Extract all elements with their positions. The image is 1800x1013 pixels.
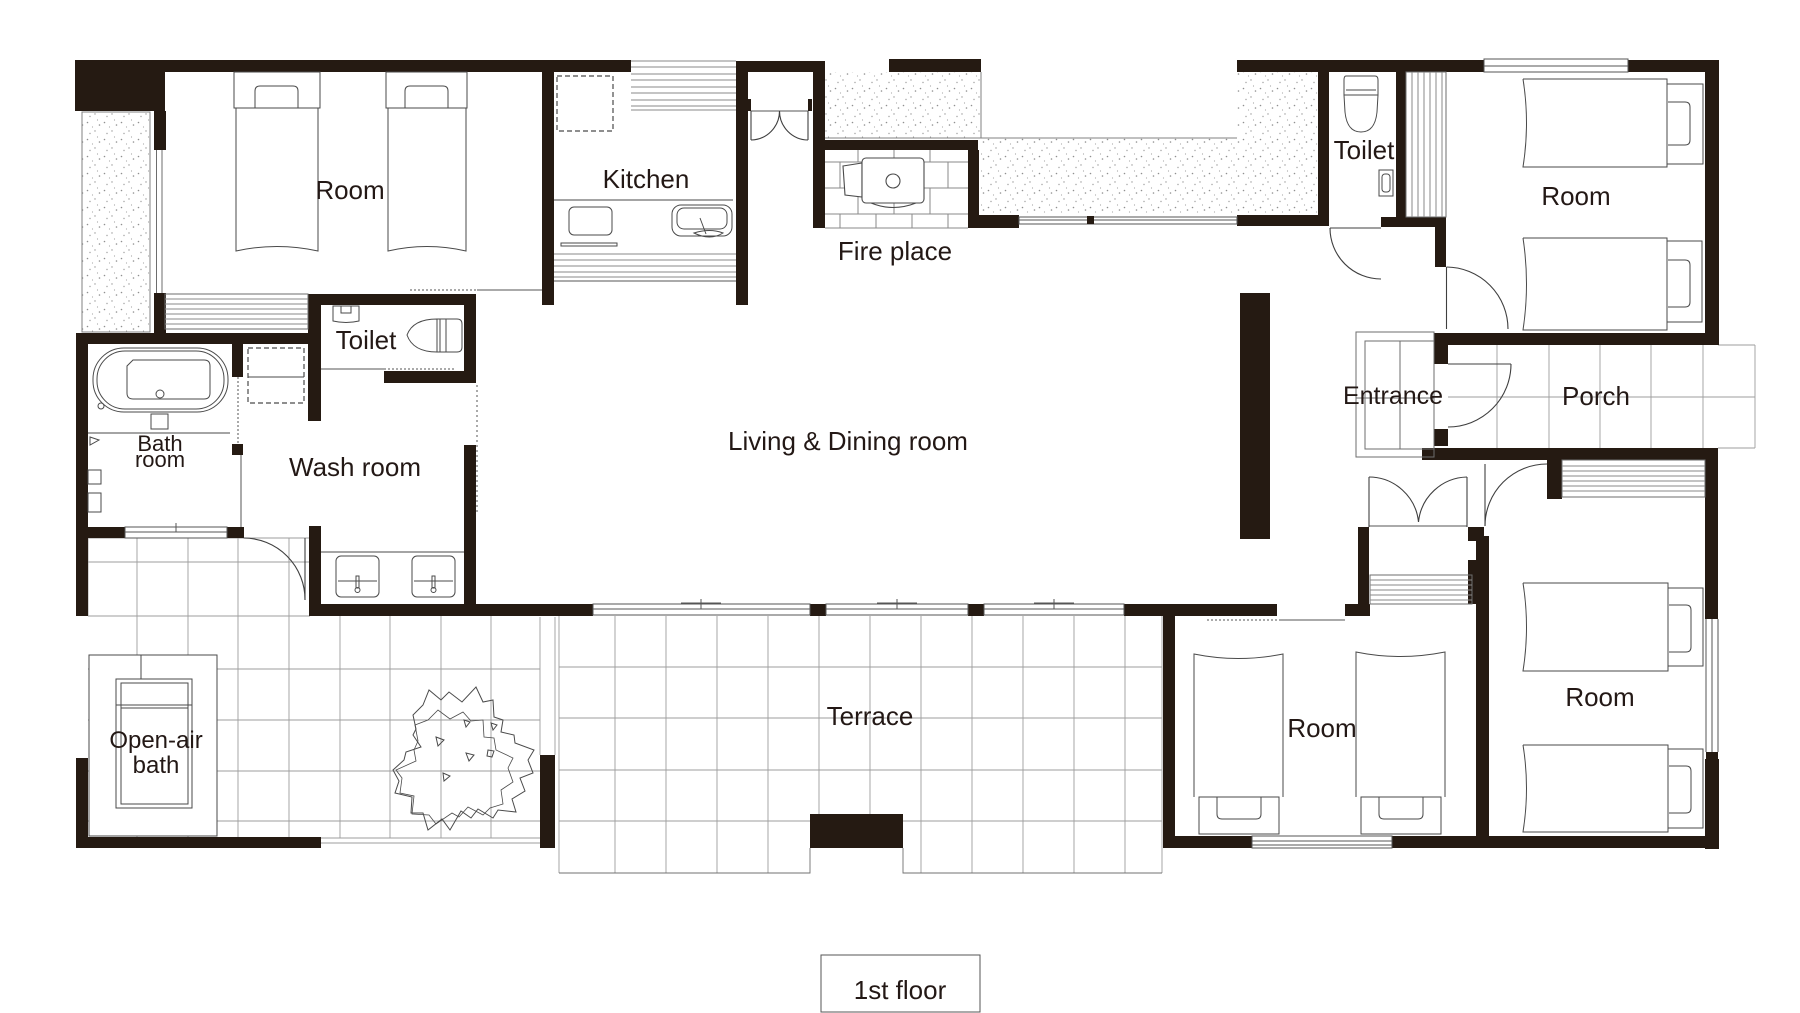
svg-text:Entrance: Entrance	[1343, 382, 1443, 410]
svg-text:Room: Room	[1565, 682, 1634, 712]
svg-text:Room: Room	[1541, 181, 1610, 211]
svg-text:Open-air: Open-air	[109, 727, 202, 754]
svg-text:Room: Room	[1287, 713, 1356, 743]
svg-text:Fire place: Fire place	[838, 236, 952, 266]
svg-text:1st floor: 1st floor	[854, 975, 947, 1005]
svg-text:bath: bath	[133, 752, 180, 779]
svg-text:Room: Room	[315, 175, 384, 205]
svg-text:Wash room: Wash room	[289, 452, 421, 482]
svg-text:Terrace: Terrace	[827, 701, 914, 731]
svg-text:Toilet: Toilet	[336, 325, 397, 355]
svg-text:Toilet: Toilet	[1334, 135, 1395, 165]
svg-text:Porch: Porch	[1562, 381, 1630, 411]
svg-text:Living & Dining room: Living & Dining room	[728, 426, 968, 456]
svg-text:Kitchen: Kitchen	[603, 164, 690, 194]
svg-text:room: room	[135, 447, 185, 472]
